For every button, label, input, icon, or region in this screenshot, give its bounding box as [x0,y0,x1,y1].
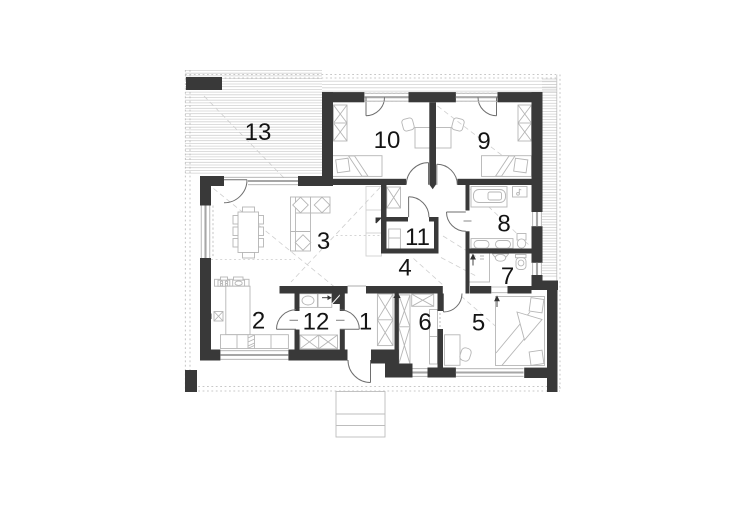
svg-text:4: 4 [398,255,411,282]
svg-text:12: 12 [303,309,330,336]
svg-text:8: 8 [497,211,510,238]
svg-text:9: 9 [477,128,490,155]
svg-text:1: 1 [359,309,372,336]
svg-text:11: 11 [405,224,430,251]
svg-text:6: 6 [418,309,431,336]
svg-text:5: 5 [472,310,485,337]
svg-text:10: 10 [374,127,401,154]
svg-text:3: 3 [317,228,330,255]
svg-text:7: 7 [501,263,514,290]
svg-text:13: 13 [245,119,272,146]
svg-text:2: 2 [252,308,265,335]
